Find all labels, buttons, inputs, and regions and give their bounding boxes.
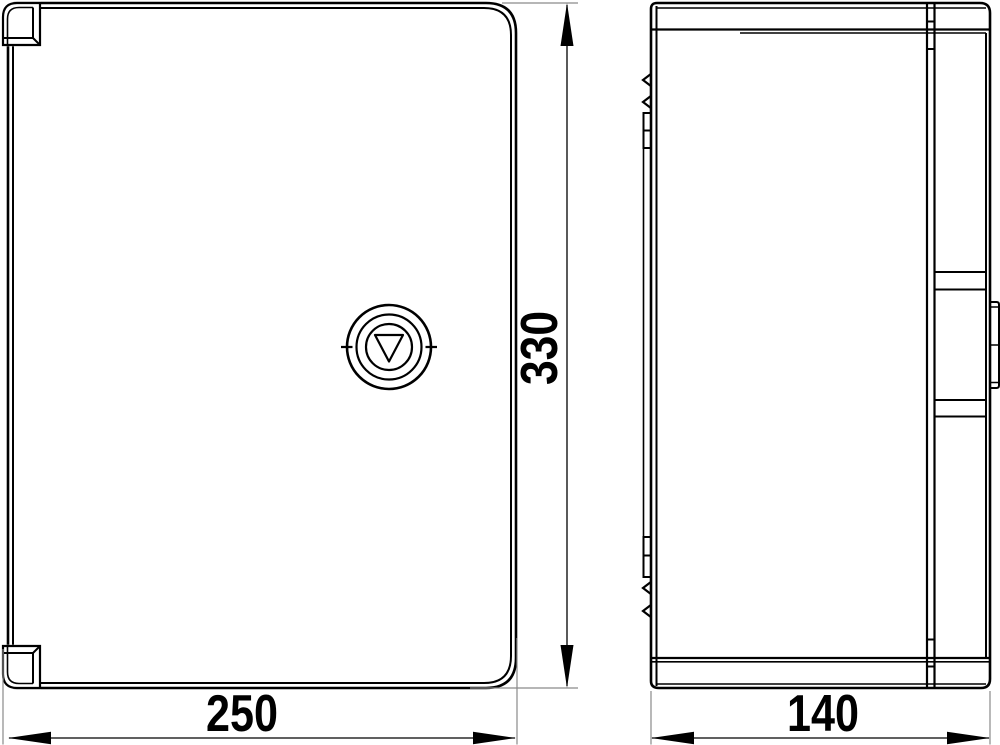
hinge-bracket-bottom-left bbox=[2, 645, 41, 690]
side-view bbox=[643, 3, 999, 688]
front-view bbox=[2, 2, 516, 690]
wall-mount-lug bbox=[990, 302, 999, 388]
dimension-height: 330 bbox=[470, 3, 578, 688]
door-lock bbox=[341, 305, 437, 389]
arrowhead-right bbox=[947, 732, 990, 744]
lock-inner-ring bbox=[366, 324, 412, 370]
side-seam-strip bbox=[927, 3, 935, 688]
hinge-bracket-top-left bbox=[2, 2, 41, 47]
dimension-depth: 140 bbox=[651, 685, 990, 745]
dimension-width: 250 bbox=[3, 638, 517, 745]
arrowhead-left bbox=[8, 732, 51, 744]
arrowhead-down bbox=[561, 645, 574, 688]
lock-triangle-icon bbox=[375, 335, 403, 362]
dimension-label-width: 250 bbox=[206, 685, 278, 743]
front-inner-outline bbox=[13, 8, 511, 683]
arrowhead-right bbox=[473, 732, 516, 744]
front-outer-outline bbox=[8, 3, 516, 688]
dimension-label-depth: 140 bbox=[787, 685, 859, 743]
lock-outer-ring bbox=[347, 305, 431, 389]
drawing-canvas: 330 250 140 bbox=[0, 0, 1000, 745]
arrowhead-left bbox=[651, 732, 694, 744]
technical-drawing: 330 250 140 bbox=[0, 0, 1000, 745]
dimension-label-height: 330 bbox=[511, 311, 569, 385]
side-body-ribs bbox=[935, 272, 987, 417]
arrowhead-up bbox=[561, 3, 574, 46]
side-outer-outline bbox=[651, 3, 990, 688]
